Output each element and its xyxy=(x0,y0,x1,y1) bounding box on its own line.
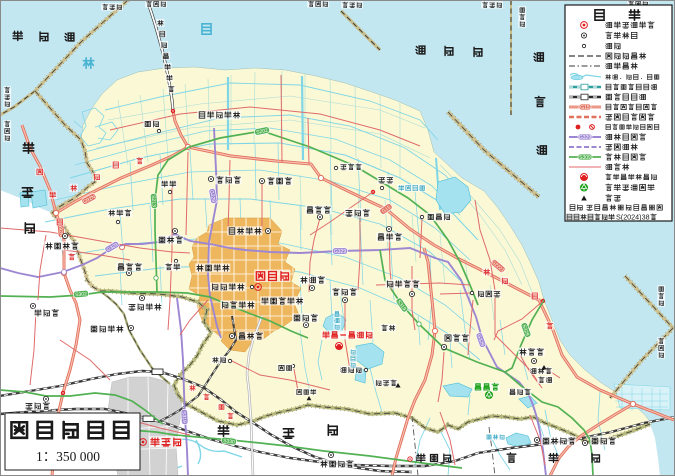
svg-text:S(2024)38: S(2024)38 xyxy=(616,213,650,222)
svg-text:S309: S309 xyxy=(579,155,591,161)
svg-text:G329: G329 xyxy=(334,249,346,255)
svg-text:1：350 000: 1：350 000 xyxy=(36,449,100,464)
svg-text:S213: S213 xyxy=(150,195,157,207)
svg-text:G329: G329 xyxy=(579,135,591,141)
svg-text:S319: S319 xyxy=(180,411,187,423)
svg-text:S302: S302 xyxy=(75,291,87,298)
svg-text:G15: G15 xyxy=(580,105,590,111)
